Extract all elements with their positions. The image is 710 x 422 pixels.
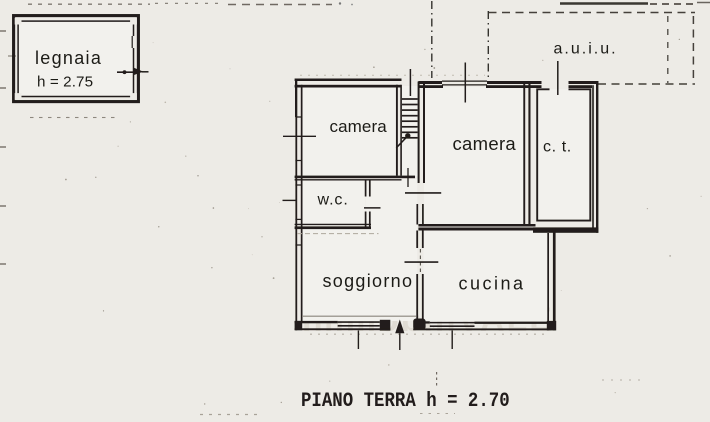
svg-text:cucina: cucina bbox=[459, 274, 526, 294]
svg-text:w.c.: w.c. bbox=[317, 192, 349, 209]
svg-text:c. t.: c. t. bbox=[543, 138, 572, 155]
svg-text:legnaia: legnaia bbox=[35, 48, 102, 68]
svg-text:h = 2.75: h = 2.75 bbox=[37, 74, 93, 91]
svg-text:camera: camera bbox=[453, 133, 517, 154]
svg-text:a.u.i.u.: a.u.i.u. bbox=[554, 41, 618, 58]
svg-text:PIANO TERRA h = 2.70: PIANO TERRA h = 2.70 bbox=[301, 389, 510, 413]
svg-text:soggiorno: soggiorno bbox=[323, 271, 414, 291]
svg-text:camera: camera bbox=[330, 117, 388, 136]
